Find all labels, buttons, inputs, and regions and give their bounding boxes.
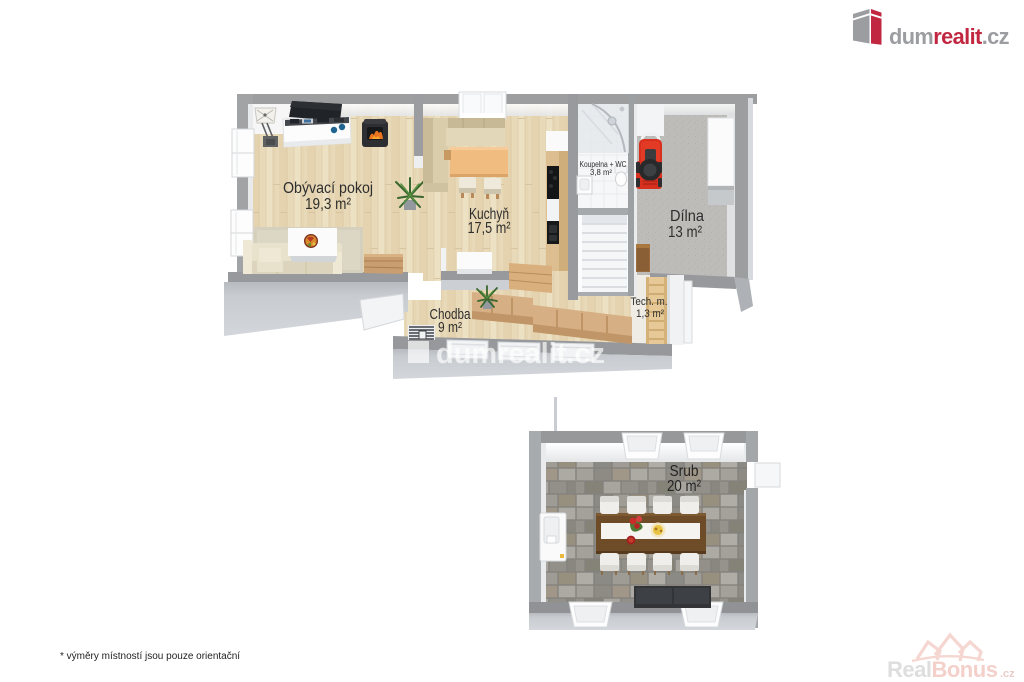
svg-text:1,3 m²: 1,3 m²	[636, 308, 664, 320]
svg-text:3,8 m²: 3,8 m²	[590, 168, 612, 177]
svg-text:19,3 m²: 19,3 m²	[305, 196, 352, 213]
svg-text:Dílna: Dílna	[670, 208, 704, 225]
svg-text:Tech. m.: Tech. m.	[631, 296, 668, 308]
svg-text:.cz: .cz	[1000, 668, 1015, 680]
svg-text:9 m²: 9 m²	[438, 320, 462, 336]
svg-text:dumrealit.cz: dumrealit.cz	[436, 338, 605, 370]
svg-text:RealBonus: RealBonus	[887, 657, 998, 682]
svg-text:20 m²: 20 m²	[667, 478, 702, 495]
svg-text:13 m²: 13 m²	[668, 224, 703, 241]
svg-text:* výměry místností jsou pouze: * výměry místností jsou pouze orientační	[60, 651, 240, 662]
svg-text:Obývací pokoj: Obývací pokoj	[283, 180, 373, 197]
svg-text:17,5 m²: 17,5 m²	[468, 220, 512, 237]
svg-text:dumrealit.cz: dumrealit.cz	[889, 24, 1009, 49]
